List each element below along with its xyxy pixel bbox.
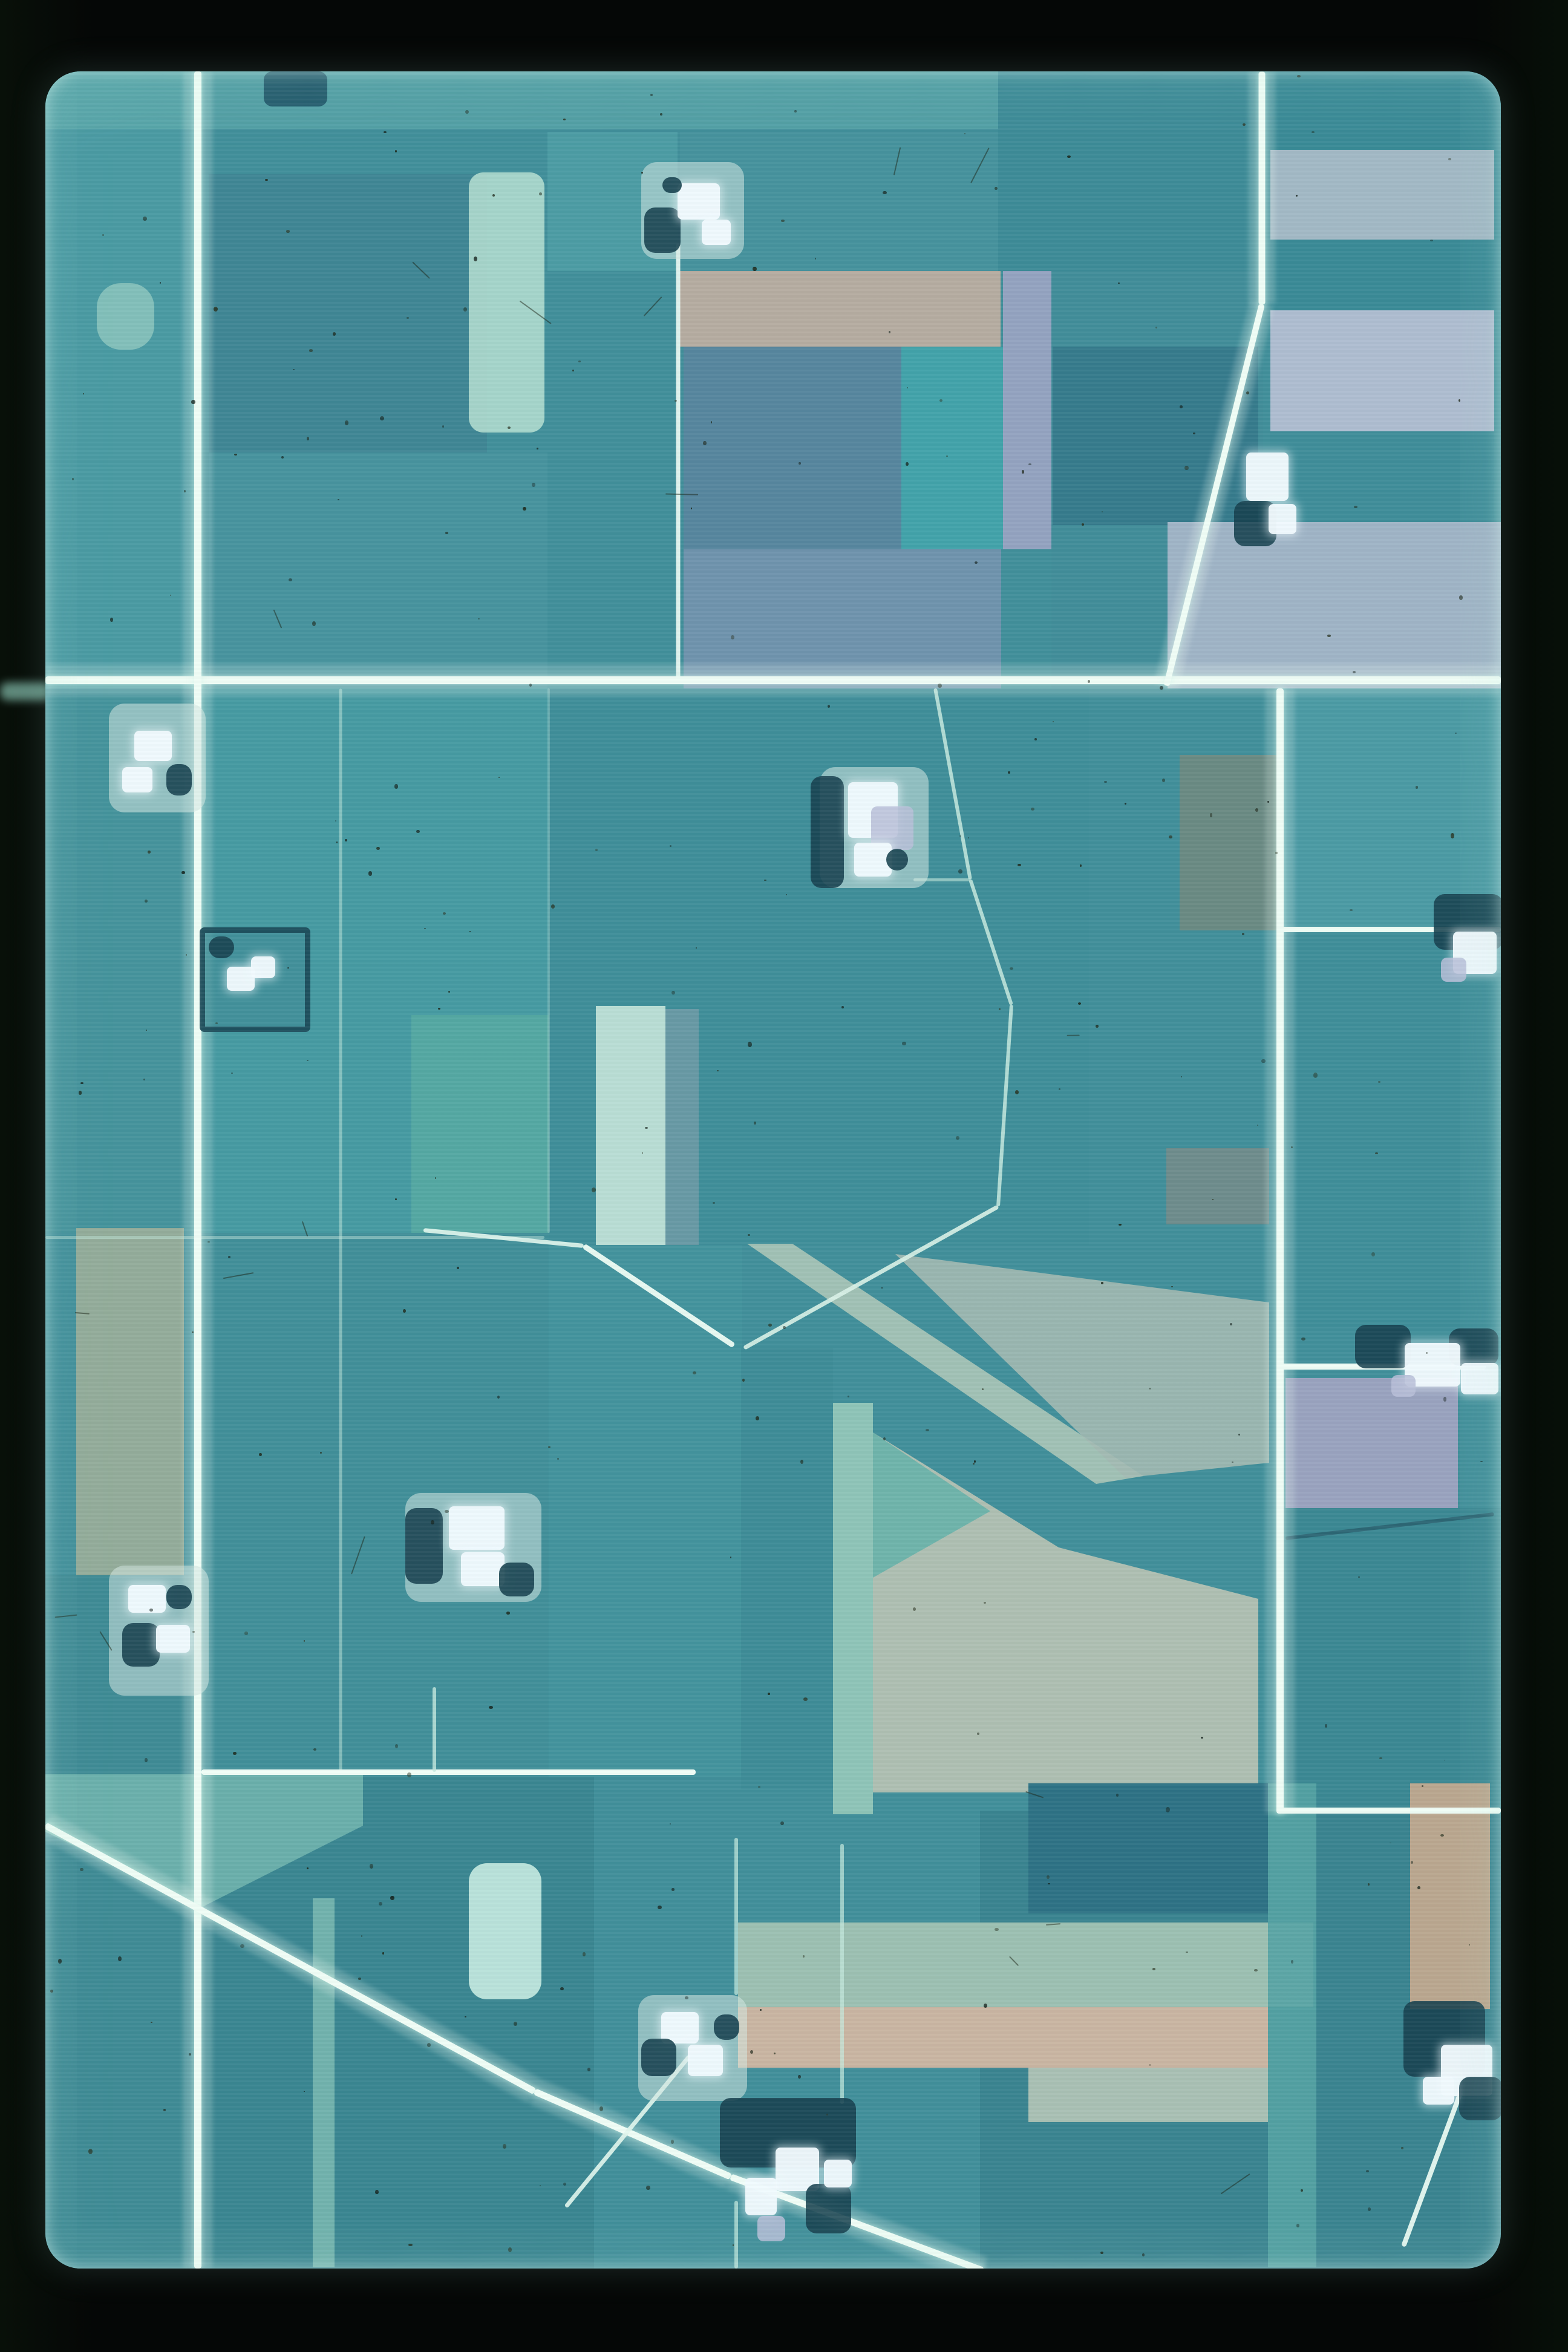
farmstead-top-center-trees (644, 207, 681, 253)
field-bl-pale-streak-column (313, 1898, 335, 2267)
dust-speck (557, 1458, 558, 1460)
dust-speck (1181, 1076, 1183, 1077)
dust-speck (443, 912, 446, 915)
field-between-column-band (741, 1348, 833, 1789)
dust-speck (384, 131, 387, 133)
farmstead-top-right-building (1269, 504, 1296, 534)
farmstead-bottom-large-shed (757, 2216, 785, 2241)
farmstead-bottom-large-building (824, 2160, 852, 2187)
dust-speck (1422, 1785, 1424, 1787)
dust-speck (312, 621, 316, 627)
farmstead-center-lower-building (449, 1506, 505, 1550)
boundary-center-vertical (547, 688, 550, 1233)
dust-speck (1448, 158, 1451, 160)
dust-speck (578, 361, 581, 362)
dust-speck (803, 1697, 808, 1701)
dust-speck (711, 421, 712, 423)
dust-speck (1440, 1834, 1444, 1837)
dust-speck (395, 150, 397, 152)
farmstead-left-upper-building (122, 767, 152, 792)
dust-speck (646, 2186, 650, 2190)
dust-speck (974, 1460, 976, 1463)
dust-speck (973, 1463, 975, 1465)
dust-speck (403, 1309, 406, 1313)
dust-speck (503, 2144, 506, 2149)
dust-speck (1088, 680, 1090, 683)
dust-speck (1366, 2170, 1370, 2172)
dust-speck (289, 578, 292, 581)
dust-speck (1261, 1059, 1265, 1062)
lane-bottom-vert-3 (840, 1844, 844, 2104)
farmstead-right-branch-shed (1391, 1375, 1416, 1397)
dust-speck (1327, 635, 1331, 637)
dust-speck (445, 1510, 448, 1513)
dust-speck (244, 1632, 249, 1635)
road-farm-spur-left (433, 1687, 436, 1772)
dust-speck (143, 217, 147, 221)
dust-speck (407, 1772, 411, 1778)
dust-speck (1212, 1199, 1214, 1200)
dust-speck (1149, 2064, 1151, 2066)
field-bottom-sage-lower (1028, 2068, 1268, 2122)
dust-speck (145, 1758, 148, 1762)
dust-speck (1067, 155, 1071, 158)
dust-speck (1255, 808, 1258, 812)
dust-speck (394, 784, 399, 788)
dust-speck (1358, 1576, 1360, 1578)
dust-speck (506, 1612, 509, 1615)
dust-speck (1210, 813, 1213, 817)
dust-speck (939, 399, 942, 402)
dust-speck (1257, 1125, 1258, 1125)
dust-speck (1238, 1434, 1240, 1436)
dust-speck (1096, 1025, 1099, 1028)
field-br-dark-band (1028, 1783, 1270, 1913)
dust-speck (1416, 786, 1418, 788)
dust-speck (532, 483, 535, 487)
field-rm-below-lavender (1282, 1508, 1501, 1811)
dust-speck (537, 448, 538, 449)
field-tr-pale-band-c (1168, 522, 1501, 688)
road-left-horizontal (201, 1769, 696, 1775)
dust-speck (764, 880, 766, 881)
dust-speck (1243, 123, 1246, 126)
dust-speck (1275, 852, 1278, 854)
dust-speck (1008, 771, 1010, 774)
farmstead-bottom-large-trees (806, 2184, 851, 2233)
dust-speck (80, 1082, 83, 1085)
dust-speck (1180, 405, 1183, 408)
road-right-vertical (1276, 688, 1284, 1814)
field-tr-pale-band-b (1270, 310, 1494, 431)
farmstead-top-center-building (678, 183, 720, 220)
dust-speck (514, 2022, 517, 2026)
dust-speck (50, 1990, 54, 1992)
dust-speck (883, 191, 887, 195)
dust-speck (1116, 1794, 1119, 1796)
farmstead-right-mid-shed (1441, 958, 1466, 982)
dust-speck (72, 478, 74, 480)
farmstead-top-right-building (1246, 452, 1289, 501)
dust-speck (902, 1042, 906, 1045)
dust-speck (1291, 1960, 1293, 1963)
dust-speck (163, 2109, 165, 2111)
dust-speck (286, 230, 290, 232)
dust-speck (336, 841, 338, 843)
dust-speck (234, 454, 237, 456)
farmstead-left-lower-trees (122, 1623, 160, 1667)
dust-speck (1022, 470, 1024, 474)
dust-speck (781, 220, 785, 222)
dust-speck (1368, 1883, 1370, 1886)
dust-speck (1149, 1388, 1151, 1390)
field-rm-olive-strip (1180, 755, 1279, 930)
dust-speck (938, 684, 942, 688)
dust-hair (643, 296, 662, 316)
dust-speck (756, 1416, 759, 1420)
dust-speck (926, 1429, 929, 1431)
dust-speck (758, 1786, 760, 1788)
dust-speck (148, 851, 151, 854)
farmstead-walled-square-building (251, 956, 275, 978)
dust-speck (186, 954, 187, 956)
road-branch-right-3 (1280, 1808, 1501, 1814)
dust-speck (1201, 1737, 1203, 1739)
dust-speck (1125, 803, 1126, 805)
dust-speck (189, 2053, 191, 2056)
field-bottom-tan-strip (738, 2007, 1268, 2068)
dust-speck (658, 1906, 662, 1909)
dust-speck (143, 1079, 145, 1080)
dust-speck (1371, 1252, 1375, 1256)
field-bottom-sage-upper (738, 1922, 1313, 2007)
dust-speck (465, 2016, 466, 2017)
dust-speck (395, 1198, 397, 1200)
dust-speck (572, 370, 573, 371)
dust-speck (1267, 801, 1269, 803)
dust-speck (815, 258, 816, 259)
dust-speck (841, 1006, 844, 1008)
dust-speck (1296, 195, 1298, 197)
dust-speck (1444, 1760, 1445, 1760)
dust-speck (794, 110, 796, 113)
dust-speck (671, 1888, 675, 1890)
dust-speck (1378, 1081, 1380, 1083)
dust-speck (379, 1902, 382, 1906)
dust-speck (508, 426, 511, 429)
dust-speck (675, 400, 677, 402)
field-center-lower-block (549, 1245, 742, 1777)
dust-speck (149, 1609, 153, 1612)
dust-speck (959, 835, 961, 837)
dust-speck (181, 871, 185, 874)
farmstead-center-lower-building (461, 1552, 505, 1586)
farmstead-center-lower-trees (405, 1508, 443, 1584)
dust-speck (1034, 738, 1037, 740)
dust-speck (489, 1706, 493, 1709)
field-tl-pale-mint-patch (469, 172, 544, 433)
field-top-tan-strip (680, 271, 1001, 347)
dust-speck (883, 1437, 886, 1440)
dust-speck (382, 1952, 385, 1954)
dust-speck (1171, 1286, 1172, 1287)
dust-speck (307, 1867, 309, 1869)
dust-speck (1301, 1338, 1305, 1341)
dust-speck (783, 1326, 786, 1329)
dust-speck (498, 777, 500, 778)
dust-speck (599, 2106, 603, 2111)
aerial-photo (45, 71, 1501, 2269)
field-top-mid-right (998, 71, 1264, 271)
farmstead-bottom-small-trees (714, 2014, 739, 2040)
lane-bottom-vert-2 (734, 2201, 738, 2269)
dust-speck (1119, 1224, 1122, 1226)
road-farm-lane-top (676, 243, 681, 680)
field-rm-lavender (1285, 1378, 1458, 1508)
farmstead-center-lower-trees (499, 1563, 534, 1596)
dust-speck (1118, 283, 1119, 284)
dust-speck (345, 420, 348, 425)
field-pale-center-column (833, 1403, 873, 1814)
farmstead-top-center-trees (662, 177, 682, 193)
dust-speck (118, 1956, 122, 1961)
farmstead-right-branch-building (1461, 1363, 1498, 1394)
dust-speck (184, 490, 186, 492)
dust-speck (368, 871, 373, 875)
dust-speck (442, 425, 444, 428)
dust-speck (1368, 2207, 1371, 2210)
farmstead-bottom-small-trees (641, 2039, 676, 2076)
dust-speck (768, 1324, 771, 1327)
dust-speck (407, 317, 409, 319)
dust-speck (1104, 781, 1107, 783)
dust-speck (754, 1122, 756, 1125)
dust-speck (146, 1030, 147, 1030)
field-tl-smooth-square (209, 174, 487, 452)
dust-speck (492, 194, 495, 197)
dust-speck (563, 119, 566, 120)
dust-speck (1242, 933, 1244, 935)
dust-speck (799, 462, 801, 465)
road-right-top-vertical (1259, 71, 1266, 304)
dust-speck (170, 595, 172, 596)
dust-speck (671, 2140, 674, 2144)
dust-speck (1166, 1807, 1170, 1812)
dust-speck (313, 1748, 316, 1751)
lane-bottom-vert-1 (734, 1838, 738, 1995)
dust-speck (958, 869, 962, 874)
field-tl-lower (209, 452, 547, 688)
field-br-light-column (1268, 1783, 1316, 2267)
dust-speck (1379, 1757, 1382, 1759)
farmstead-left-lower-building (128, 1585, 166, 1613)
dust-speck (1169, 835, 1172, 838)
dust-hair (1067, 1034, 1079, 1036)
dust-speck (320, 1452, 322, 1454)
dust-hair (665, 494, 698, 495)
dust-speck (375, 2190, 378, 2194)
dust-speck (102, 234, 105, 235)
dust-speck (1480, 1461, 1483, 1463)
dust-speck (848, 1396, 849, 1397)
farmstead-left-lower-building (156, 1625, 190, 1653)
dust-speck (287, 967, 289, 969)
field-turquoise (901, 347, 1004, 549)
dust-speck (1142, 2253, 1145, 2256)
dust-speck (79, 1091, 82, 1094)
dust-speck (408, 2244, 412, 2246)
dust-speck (717, 1070, 719, 1071)
dust-speck (798, 2075, 801, 2079)
farmstead-top-center-building (702, 220, 731, 245)
field-tl-light-smudge (97, 283, 154, 350)
dust-speck (881, 1287, 883, 1289)
field-br-beige (1410, 1783, 1490, 2009)
dust-speck (1230, 1323, 1232, 1325)
light-leak (0, 682, 51, 701)
field-tr-pale-band-a (1270, 150, 1494, 240)
dust-speck (1160, 686, 1163, 690)
field-left-edge-column (45, 71, 203, 688)
dust-speck (780, 1821, 784, 1825)
dust-speck (800, 1460, 803, 1464)
dust-speck (889, 331, 890, 333)
dust-speck (671, 991, 675, 995)
farmstead-bottom-large-building (745, 2178, 777, 2215)
road-main-horizontal (45, 676, 1501, 684)
dust-speck (335, 820, 336, 821)
dust-speck (529, 684, 532, 687)
dust-speck (956, 1136, 959, 1139)
dust-speck (1101, 1282, 1103, 1284)
dust-speck (457, 1267, 459, 1269)
dust-speck (913, 1607, 916, 1611)
field-left-sage-column (76, 1228, 184, 1575)
dust-speck (670, 1823, 671, 1824)
dust-speck (1459, 595, 1463, 600)
dust-speck (1162, 779, 1165, 782)
farmstead-bottom-right-building (1423, 2077, 1454, 2105)
dust-speck (1184, 466, 1189, 470)
dust-speck (233, 1752, 236, 1756)
field-bl-bright-patch (469, 1863, 541, 1999)
dust-speck (1313, 1073, 1318, 1077)
field-slate-blue (684, 347, 901, 549)
farmstead-walled-square-trees (209, 936, 234, 958)
boundary-mid-vertical-faint (339, 688, 342, 1771)
dust-speck (964, 133, 965, 134)
dust-speck (1246, 391, 1249, 394)
dust-speck (1082, 523, 1084, 526)
farmstead-bottom-right-trees (1459, 2077, 1501, 2120)
dust-speck (1469, 1944, 1470, 1945)
dust-speck (703, 441, 707, 446)
dust-speck (390, 1896, 394, 1900)
dust-speck (448, 991, 449, 993)
farmstead-left-lower-trees (166, 1585, 192, 1609)
dust-speck (1401, 2147, 1403, 2149)
dust-speck (1291, 1146, 1293, 1148)
dust-speck (151, 2022, 152, 2023)
dust-speck (995, 187, 997, 190)
field-top-dark-notch (264, 71, 327, 106)
dust-speck (1100, 2252, 1103, 2255)
dust-speck (88, 2149, 93, 2154)
dust-speck (345, 839, 347, 841)
field-periwinkle-column (1003, 271, 1051, 549)
dust-speck (753, 267, 757, 271)
farmstead-right-branch-trees (1355, 1325, 1411, 1368)
dust-speck (583, 1952, 586, 1956)
dust-speck (592, 1187, 596, 1192)
field-rm-teal (1282, 930, 1501, 1327)
dust-speck (685, 1996, 688, 1999)
farmstead-bottom-small-building (688, 2045, 723, 2076)
farmstead-left-upper-trees (166, 764, 192, 795)
dust-speck (1080, 864, 1082, 867)
farmstead-left-upper-building (134, 731, 172, 761)
dust-speck (1426, 1352, 1427, 1354)
field-tr-teal-band (1270, 431, 1494, 522)
farmstead-center-trees (811, 776, 844, 888)
dust-speck (191, 400, 195, 404)
dust-speck (309, 349, 313, 352)
dust-speck (768, 1693, 770, 1696)
field-dark-olive-square (1166, 1148, 1269, 1224)
slide-mount (0, 0, 1568, 2352)
farmstead-center-trees (886, 849, 908, 871)
dust-speck (977, 1733, 979, 1735)
dust-speck (358, 1978, 361, 1980)
dust-speck (1411, 1861, 1413, 1864)
dust-speck (696, 947, 697, 949)
dust-speck (803, 1955, 805, 1958)
dust-speck (1350, 909, 1353, 911)
